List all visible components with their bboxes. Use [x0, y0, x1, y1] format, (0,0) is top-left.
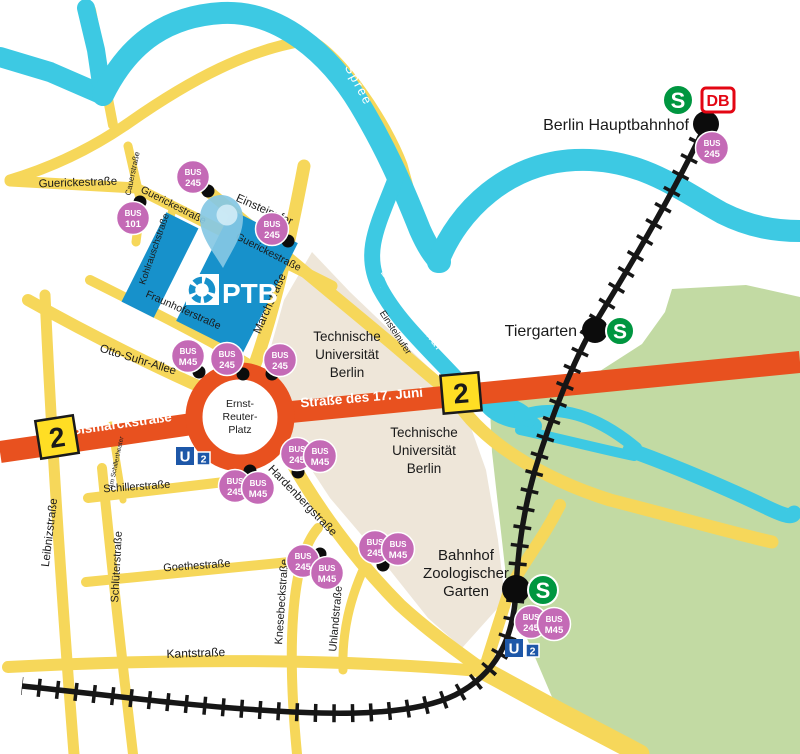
schlueter-label: Schlüterstraße	[109, 531, 125, 603]
ubahn-letter: U	[509, 641, 520, 658]
sbahn-icon-hauptbahnhof: S	[663, 85, 693, 115]
tiergarten-park-area	[490, 285, 800, 754]
bus-badge: BUS 245	[177, 161, 210, 194]
bus-badge: BUS 245	[256, 213, 289, 246]
erp-label-line2: Reuter-	[222, 411, 258, 423]
svg-text:101: 101	[125, 219, 142, 230]
road-badge-2-west: 2	[35, 415, 78, 458]
tu-north-line1: Technische	[313, 329, 381, 344]
svg-text:245: 245	[185, 178, 202, 189]
sbahn-letter: S	[613, 321, 627, 344]
svg-text:BUS: BUS	[219, 350, 237, 359]
bus-badge: BUS 101	[117, 202, 150, 235]
svg-text:245: 245	[219, 360, 236, 371]
bus-badge: BUS M45	[382, 533, 415, 566]
erp-label-line1: Ernst-	[226, 398, 255, 410]
erp-label-line3: Platz	[228, 424, 251, 436]
bus-badge: BUS M45	[304, 440, 337, 473]
svg-text:BUS: BUS	[272, 351, 290, 360]
svg-text:M45: M45	[389, 550, 408, 561]
ubahn-letter: U	[180, 449, 191, 466]
road-badge-2-east-number: 2	[452, 377, 470, 409]
ptb-logo-text: PTB	[222, 278, 278, 309]
sbahn-letter: S	[671, 88, 686, 113]
map-stage: Ernst- Reuter- Platz Bismarckstraße Stra…	[0, 0, 800, 754]
street-schlueter-path	[102, 468, 133, 754]
zoo-label-line2: Zoologischer	[423, 565, 509, 582]
sbahn-icon-zoo: S	[528, 575, 558, 605]
ernst-reuter-platz: Ernst- Reuter- Platz	[194, 371, 286, 463]
tu-north-line2: Universität	[315, 347, 379, 362]
map-canvas: Ernst- Reuter- Platz Bismarckstraße Stra…	[0, 0, 800, 754]
svg-text:BUS: BUS	[546, 615, 564, 624]
svg-text:BUS: BUS	[704, 139, 722, 148]
svg-text:BUS: BUS	[125, 209, 143, 218]
road-badge-2-east: 2	[440, 372, 481, 413]
street-kant-path	[8, 661, 480, 671]
tu-south-line3: Berlin	[407, 461, 442, 476]
bus-badge: BUS 245	[264, 344, 297, 377]
svg-text:245: 245	[264, 230, 281, 241]
bus-badge: BUS M45	[242, 472, 275, 505]
svg-text:BUS: BUS	[180, 347, 198, 356]
svg-text:M45: M45	[249, 489, 268, 500]
bus-badge: BUS M45	[311, 557, 344, 590]
spree-east	[438, 160, 800, 262]
svg-text:M45: M45	[311, 457, 330, 468]
svg-text:BUS: BUS	[264, 220, 282, 229]
svg-text:M45: M45	[318, 574, 337, 585]
svg-text:BUS: BUS	[250, 479, 268, 488]
svg-text:BUS: BUS	[185, 168, 203, 177]
db-letters: DB	[706, 93, 729, 110]
svg-text:M45: M45	[179, 357, 198, 368]
hauptbahnhof-label: Berlin Hauptbahnhof	[543, 117, 689, 134]
spree-west-inlet	[0, 57, 103, 95]
svg-text:BUS: BUS	[312, 447, 330, 456]
street-uhland-path	[343, 557, 369, 670]
svg-text:BUS: BUS	[390, 540, 408, 549]
tiergarten-label: Tiergarten	[505, 323, 577, 340]
bus-badge: BUS 245	[696, 132, 729, 165]
tu-south-line2: Universität	[392, 443, 456, 458]
u2-number: 2	[201, 454, 207, 466]
zoo-label-line3: Garten	[443, 583, 489, 600]
ptb-logo: PTB	[186, 274, 278, 309]
bus-badge: BUS M45	[538, 608, 571, 641]
location-pin-hole	[217, 205, 238, 226]
zoo-label-line1: Bahnhof	[438, 547, 495, 564]
svg-text:245: 245	[272, 361, 289, 372]
svg-text:245: 245	[704, 149, 721, 160]
kant-label: Kantstraße	[166, 645, 225, 661]
tiergarten-station-dot	[582, 317, 608, 343]
sbahn-letter: S	[536, 578, 551, 603]
bus-badge: BUS M45	[172, 340, 205, 373]
svg-text:BUS: BUS	[295, 552, 313, 561]
u2-number: 2	[530, 646, 536, 658]
svg-text:BUS: BUS	[319, 564, 337, 573]
svg-text:245: 245	[295, 562, 312, 573]
tu-south-line1: Technische	[390, 425, 458, 440]
tu-north-line3: Berlin	[330, 365, 365, 380]
bus-badge: BUS 245	[211, 343, 244, 376]
db-icon-hauptbahnhof: DB	[702, 88, 734, 112]
otto-suhr-label: Otto-Suhr-Allee	[98, 343, 177, 378]
svg-text:M45: M45	[545, 625, 564, 636]
sbahn-icon-tiergarten: S	[606, 317, 634, 345]
